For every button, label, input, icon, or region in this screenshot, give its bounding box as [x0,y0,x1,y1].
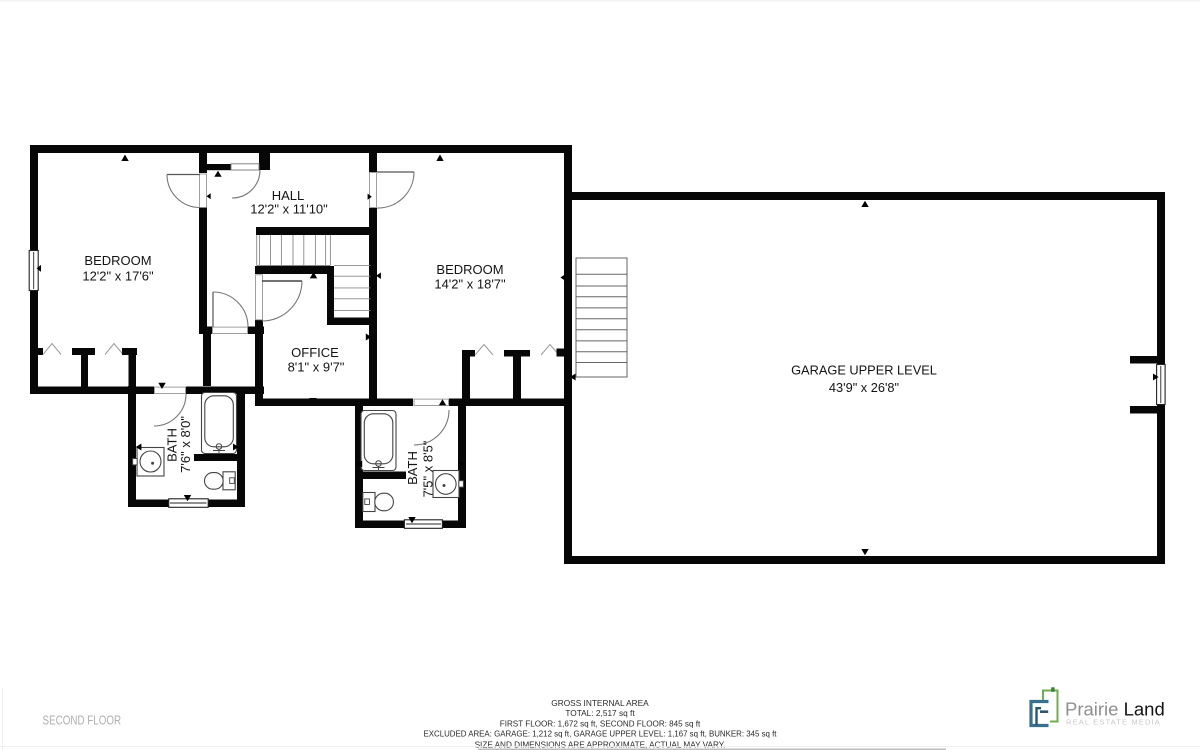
svg-text:REAL ESTATE MEDIA: REAL ESTATE MEDIA [1066,717,1161,726]
svg-text:OFFICE: OFFICE [291,345,339,360]
svg-text:SECOND FLOOR: SECOND FLOOR [43,715,122,728]
svg-text:EXCLUDED AREA: GARAGE: 1,212 s: EXCLUDED AREA: GARAGE: 1,212 sq ft, GARA… [423,730,777,739]
svg-text:GARAGE UPPER LEVEL: GARAGE UPPER LEVEL [791,363,937,378]
svg-text:TOTAL: 2,517 sq ft: TOTAL: 2,517 sq ft [565,708,635,718]
svg-text:BEDROOM: BEDROOM [84,253,151,268]
svg-text:7'6" x 8'0": 7'6" x 8'0" [178,416,193,473]
svg-text:14'2" x 18'7": 14'2" x 18'7" [434,276,506,291]
svg-text:BEDROOM: BEDROOM [436,262,503,277]
svg-text:FIRST FLOOR: 1,672 sq ft, SECO: FIRST FLOOR: 1,672 sq ft, SECOND FLOOR: … [500,719,701,728]
svg-text:GROSS INTERNAL AREA: GROSS INTERNAL AREA [551,698,649,708]
svg-text:8'1" x 9'7": 8'1" x 9'7" [288,359,345,374]
svg-text:7'5" x 8'5": 7'5" x 8'5" [421,440,436,497]
svg-text:BATH: BATH [405,451,420,485]
svg-text:43'9" x 26'8": 43'9" x 26'8" [829,380,899,395]
svg-text:12'2" x 17'6": 12'2" x 17'6" [82,268,154,283]
svg-text:SIZE AND DIMENSIONS ARE APPROX: SIZE AND DIMENSIONS ARE APPROXIMATE, ACT… [475,740,726,749]
svg-text:12'2" x 11'10": 12'2" x 11'10" [250,201,328,216]
